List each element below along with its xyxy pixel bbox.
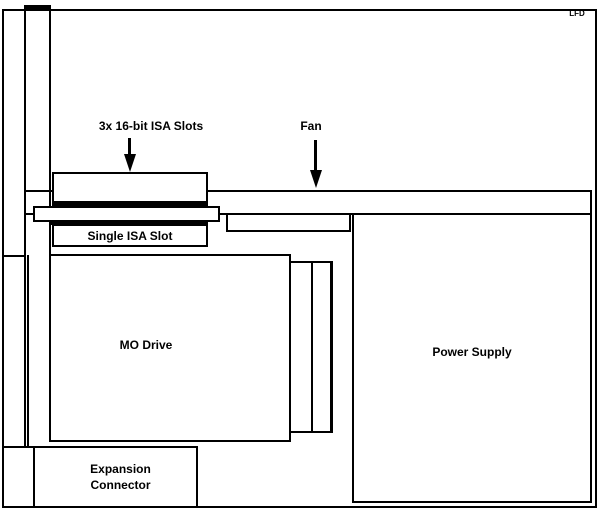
single-isa-slot-box: Single ISA Slot [52,224,208,247]
fan-callout-arrow-icon [310,170,322,188]
diagram-canvas: LFD Power Supply Single ISA Slot MO Driv… [0,0,600,509]
rear-panel-rail-2 [27,255,29,448]
mo-drive-label: MO Drive [86,338,206,353]
isa-slots-callout-label: 3x 16-bit ISA Slots [71,119,231,134]
fan-callout-arrow-shaft [314,140,317,172]
expansion-connector-box: Expansion Connector [33,446,198,508]
fan-callout-label: Fan [276,119,346,134]
expansion-connector-label-line2: Connector [91,477,151,493]
fan-box [226,213,351,232]
power-supply-box: Power Supply [352,213,592,503]
rear-panel-divider [2,255,25,257]
isa-slots-callout-arrow-icon [124,154,136,172]
isa-slots-box [52,172,208,204]
rear-panel-top-tab [24,5,51,10]
mo-drive-box: MO Drive [49,254,291,442]
expansion-connector-label-line1: Expansion [90,461,151,477]
single-isa-slot-label: Single ISA Slot [88,229,173,243]
mo-drive-connector-2 [311,261,333,433]
corner-label: LFD [564,9,590,19]
power-supply-label: Power Supply [432,345,511,359]
rear-panel-rail-1 [24,9,26,448]
mo-drive-connector-1 [289,261,313,433]
